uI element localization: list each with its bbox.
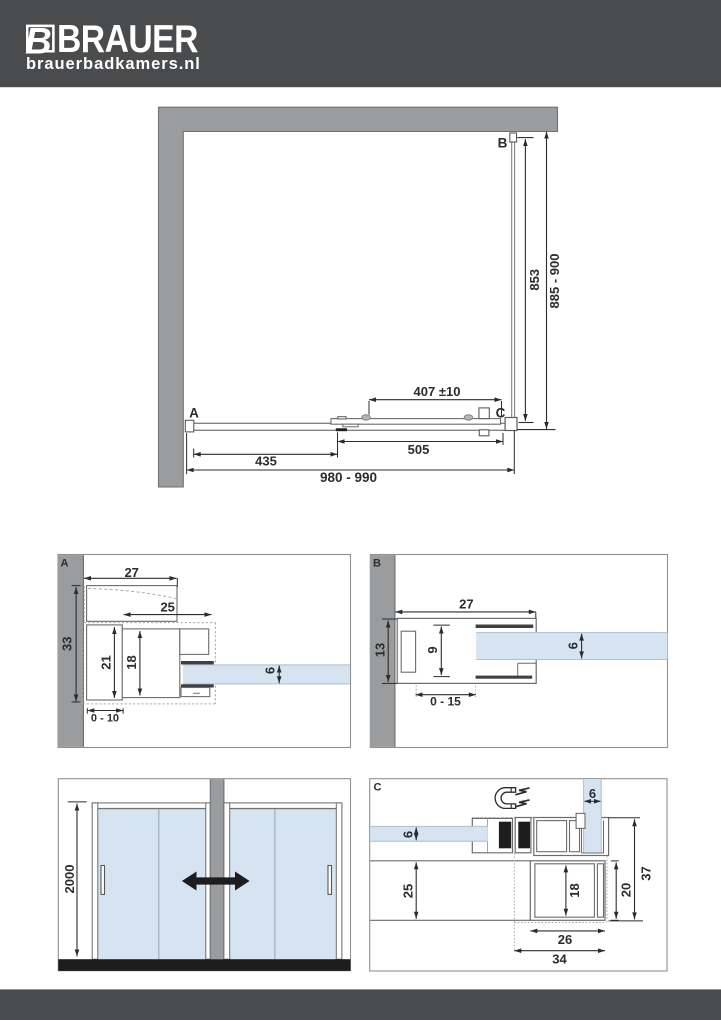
- svg-text:B: B: [373, 558, 381, 570]
- svg-text:27: 27: [459, 597, 473, 612]
- svg-text:34: 34: [552, 952, 567, 967]
- svg-text:37: 37: [638, 866, 653, 880]
- svg-text:B: B: [498, 136, 508, 151]
- svg-text:20: 20: [618, 883, 633, 897]
- svg-text:6: 6: [565, 642, 580, 649]
- svg-text:33: 33: [59, 636, 74, 650]
- svg-text:6: 6: [400, 831, 415, 838]
- svg-text:BRAUER: BRAUER: [57, 17, 198, 61]
- svg-text:407 ±10: 407 ±10: [414, 384, 461, 399]
- svg-text:9: 9: [425, 646, 440, 653]
- svg-text:21: 21: [98, 655, 113, 669]
- svg-text:brauerbadkamers.nl: brauerbadkamers.nl: [26, 55, 201, 73]
- svg-text:6: 6: [263, 667, 278, 674]
- svg-text:980 - 990: 980 - 990: [320, 470, 377, 485]
- svg-text:505: 505: [408, 442, 430, 457]
- svg-text:853: 853: [527, 269, 542, 291]
- svg-text:18: 18: [567, 883, 582, 897]
- svg-text:13: 13: [372, 643, 387, 657]
- svg-text:25: 25: [400, 884, 415, 898]
- svg-text:2000: 2000: [62, 865, 77, 894]
- svg-text:25: 25: [160, 599, 174, 614]
- svg-text:A: A: [189, 406, 199, 421]
- svg-text:6: 6: [589, 786, 596, 801]
- svg-text:A: A: [61, 558, 69, 570]
- svg-text:27: 27: [124, 565, 138, 580]
- svg-text:C: C: [496, 405, 506, 420]
- svg-text:26: 26: [558, 932, 572, 947]
- svg-text:0 - 15: 0 - 15: [430, 694, 461, 708]
- svg-text:885 - 900: 885 - 900: [547, 254, 562, 309]
- svg-text:C: C: [374, 782, 382, 794]
- svg-text:435: 435: [255, 453, 277, 468]
- svg-text:18: 18: [124, 655, 139, 669]
- svg-text:0 - 10: 0 - 10: [91, 713, 119, 725]
